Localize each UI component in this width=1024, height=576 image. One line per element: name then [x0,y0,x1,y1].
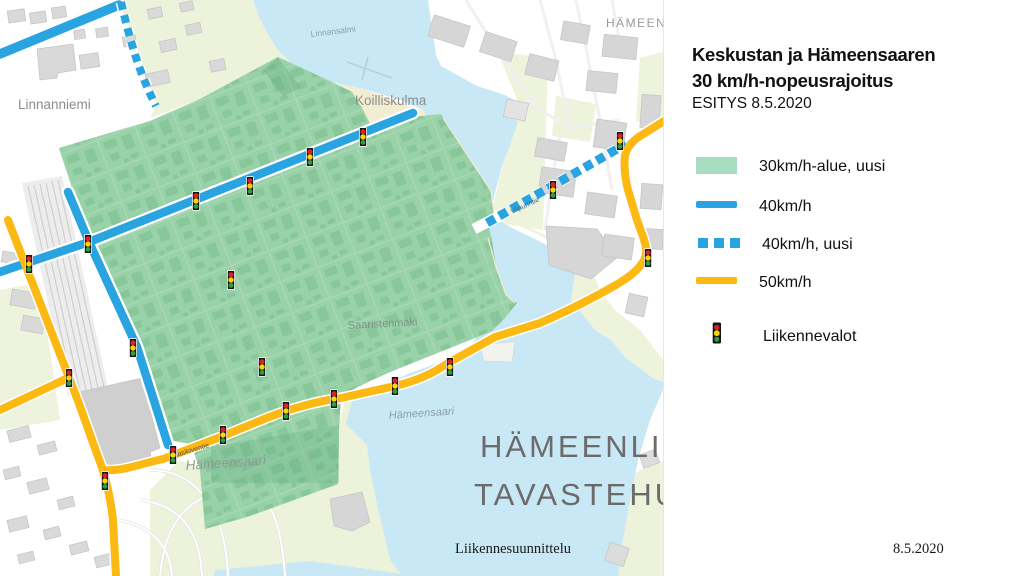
svg-text:Liikennevalot: Liikennevalot [763,328,857,345]
svg-text:ESITYS 8.5.2020: ESITYS 8.5.2020 [692,95,812,112]
svg-text:Koilliskulma: Koilliskulma [355,93,427,108]
svg-text:50km/h: 50km/h [759,274,811,291]
svg-text:Linnanniemi: Linnanniemi [18,97,91,112]
svg-text:Liikennesuunnittelu: Liikennesuunnittelu [455,541,571,557]
svg-text:40km/h: 40km/h [759,198,811,215]
svg-text:30 km/h-nopeusrajoitus: 30 km/h-nopeusrajoitus [692,70,893,91]
svg-text:TAVASTEHU: TAVASTEHU [474,477,680,512]
svg-text:8.5.2020: 8.5.2020 [893,541,944,557]
svg-text:HÄMEENLI: HÄMEENLI [480,429,662,464]
svg-text:HÄMEEN: HÄMEEN [606,16,666,30]
svg-text:Keskustan ja Hämeensaaren: Keskustan ja Hämeensaaren [692,44,935,65]
svg-text:30km/h-alue, uusi: 30km/h-alue, uusi [759,158,885,175]
svg-text:40km/h, uusi: 40km/h, uusi [762,236,853,253]
